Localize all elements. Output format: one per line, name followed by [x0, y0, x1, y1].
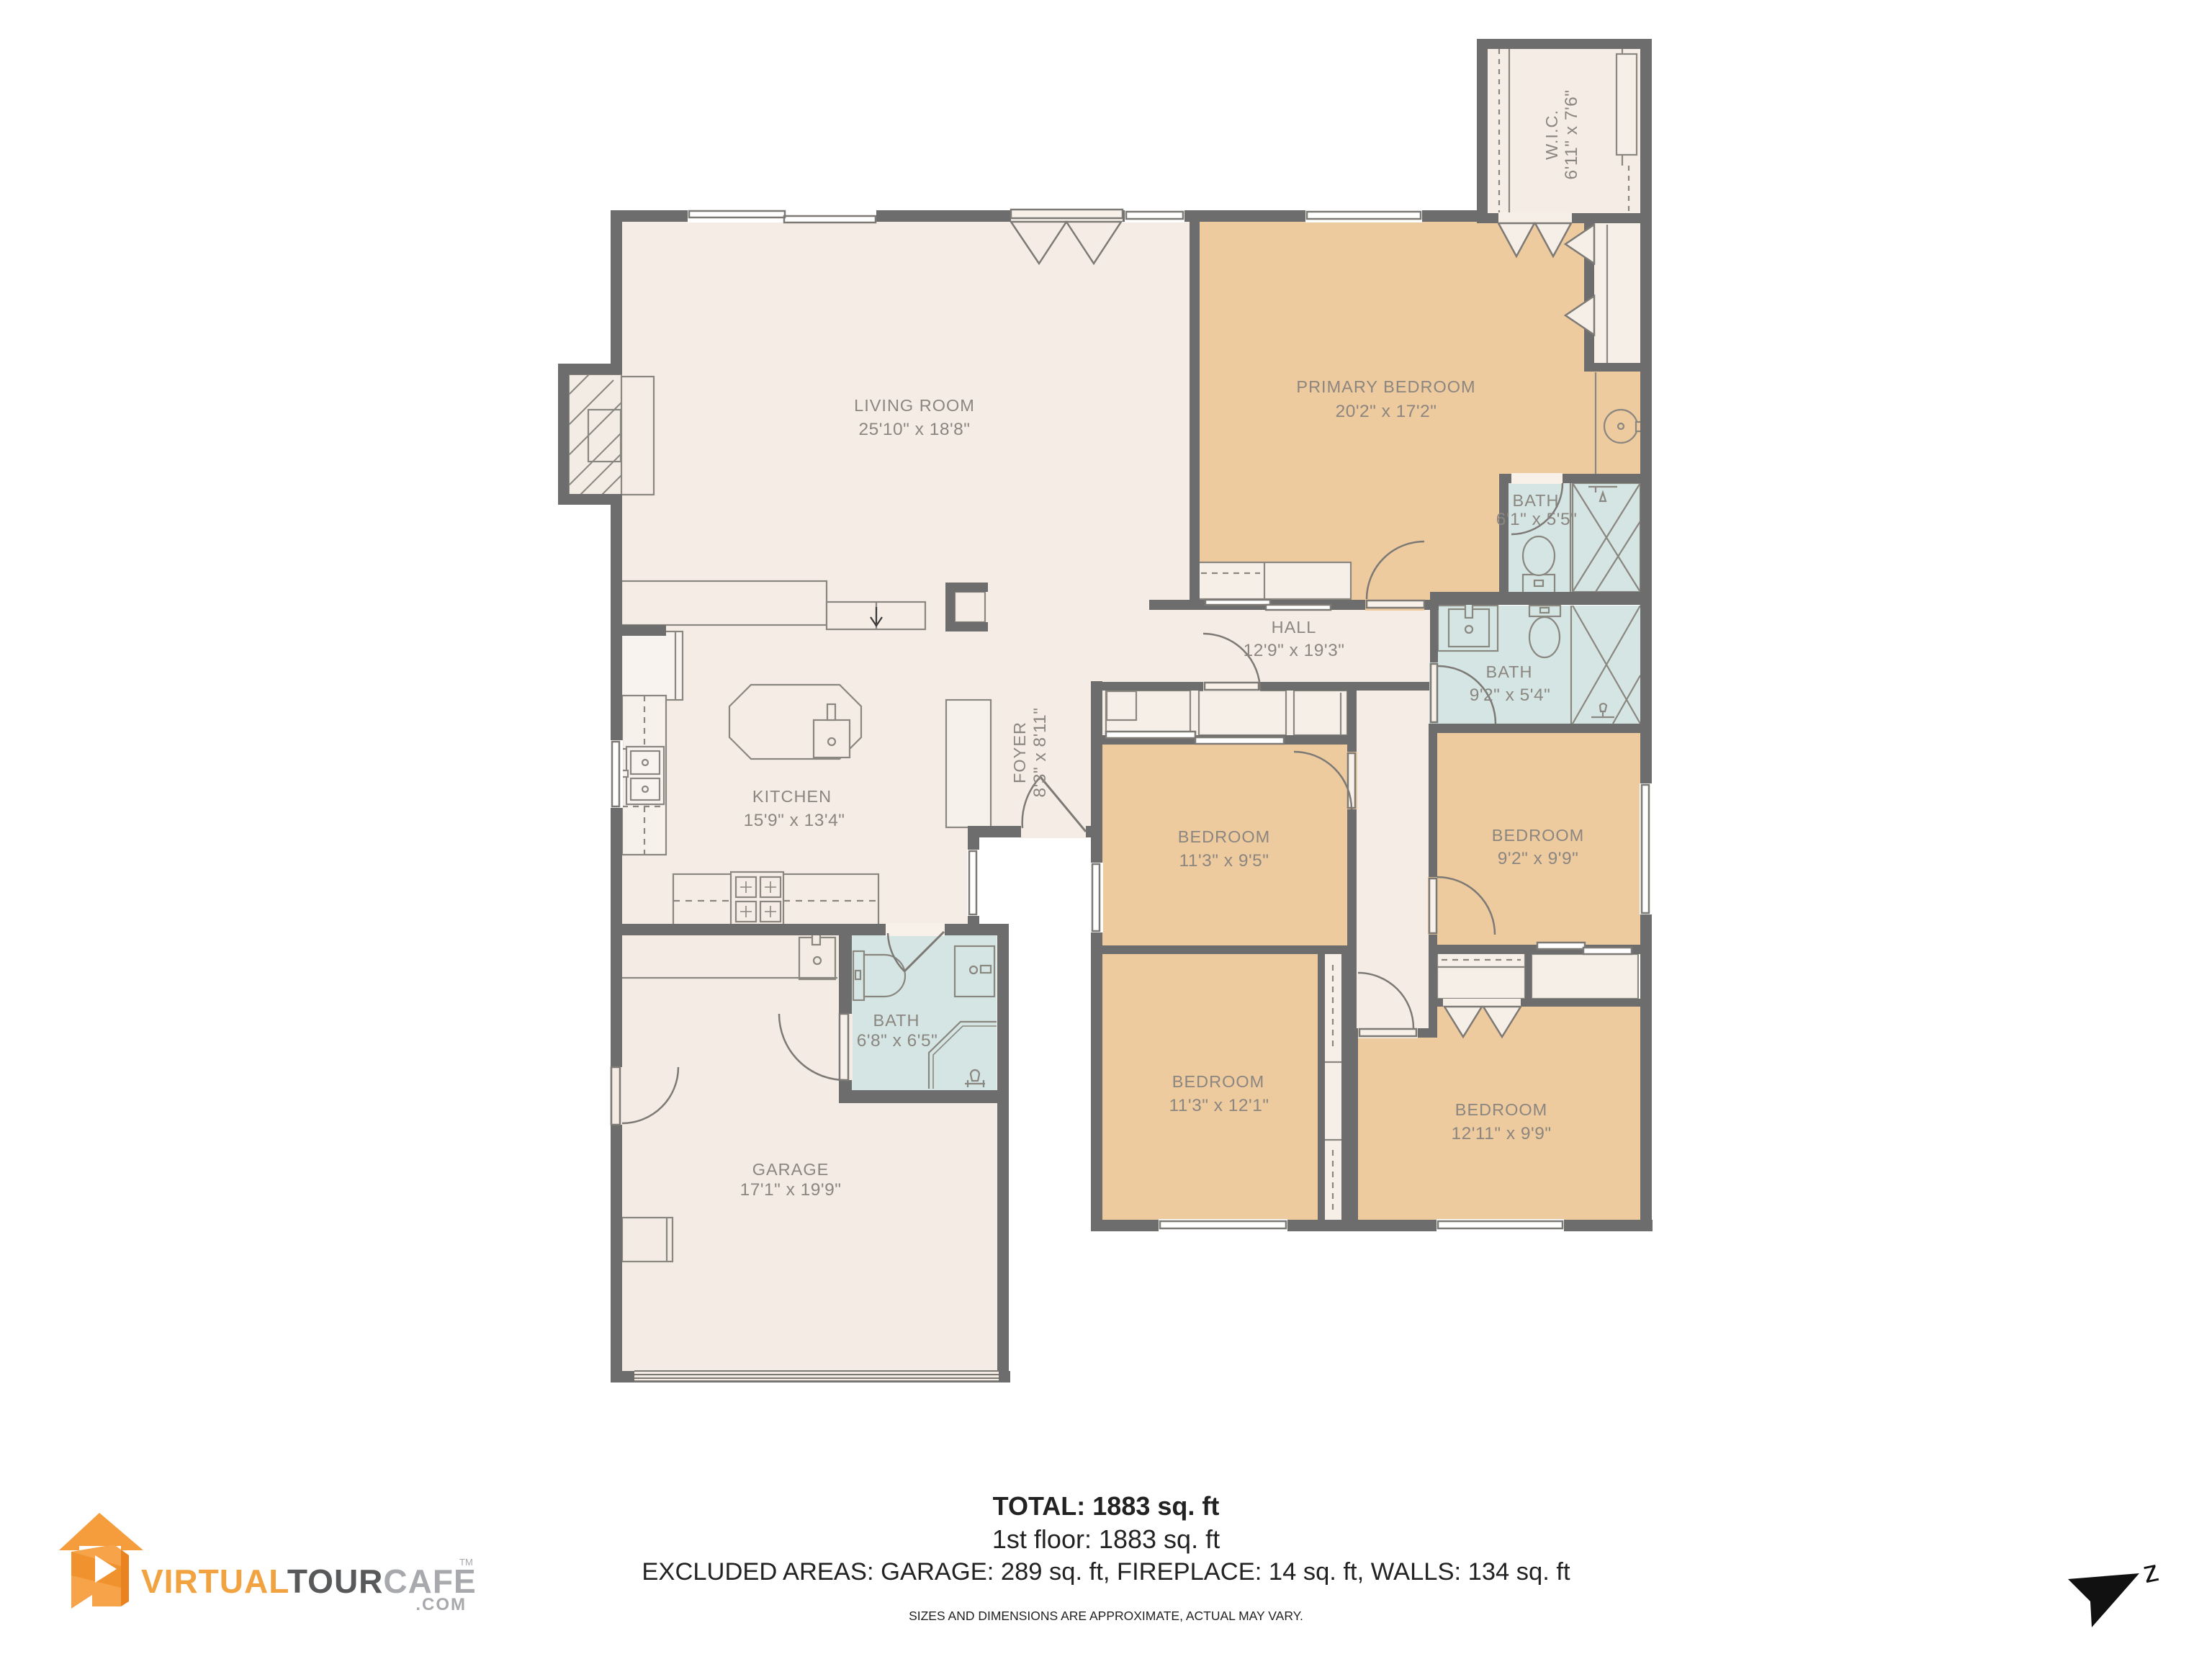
svg-text:11'3" x 12'1": 11'3" x 12'1" — [1169, 1096, 1269, 1115]
svg-text:FOYER: FOYER — [1010, 721, 1029, 783]
svg-text:BEDROOM: BEDROOM — [1492, 826, 1584, 845]
svg-text:1st floor: 1883 sq. ft: 1st floor: 1883 sq. ft — [992, 1524, 1220, 1554]
svg-text:W.I.C.: W.I.C. — [1542, 109, 1561, 160]
svg-text:HALL: HALL — [1272, 618, 1317, 637]
svg-text:BEDROOM: BEDROOM — [1172, 1072, 1264, 1091]
svg-text:11'3" x 9'5": 11'3" x 9'5" — [1179, 851, 1269, 871]
svg-text:12'11" x 9'9": 12'11" x 9'9" — [1451, 1124, 1551, 1143]
svg-text:15'9" x 13'4": 15'9" x 13'4" — [744, 811, 845, 830]
svg-text:KITCHEN: KITCHEN — [752, 787, 832, 806]
svg-text:BATH: BATH — [873, 1011, 920, 1030]
svg-text:TOTAL: 1883 sq. ft: TOTAL: 1883 sq. ft — [993, 1491, 1220, 1521]
svg-text:6'8" x 6'5": 6'8" x 6'5" — [857, 1031, 938, 1051]
svg-text:TM: TM — [459, 1557, 473, 1568]
svg-text:GARAGE: GARAGE — [752, 1160, 829, 1179]
svg-text:BATH: BATH — [1486, 662, 1533, 681]
svg-text:.COM: .COM — [415, 1595, 467, 1614]
svg-text:PRIMARY BEDROOM: PRIMARY BEDROOM — [1296, 377, 1475, 396]
svg-text:LIVING ROOM: LIVING ROOM — [854, 396, 975, 415]
svg-text:12'9" x 19'3": 12'9" x 19'3" — [1244, 641, 1345, 660]
svg-text:9'2" x 5'4": 9'2" x 5'4" — [1470, 685, 1551, 705]
svg-text:6'1" x 5'5": 6'1" x 5'5" — [1496, 510, 1578, 529]
svg-text:25'10" x 18'8": 25'10" x 18'8" — [859, 420, 971, 439]
svg-text:17'1" x 19'9": 17'1" x 19'9" — [740, 1180, 842, 1200]
svg-text:8'3" x 8'11": 8'3" x 8'11" — [1030, 708, 1050, 798]
svg-text:6'11" x 7'6": 6'11" x 7'6" — [1562, 90, 1581, 180]
svg-text:EXCLUDED AREAS: GARAGE: 289 sq: EXCLUDED AREAS: GARAGE: 289 sq. ft, FIRE… — [642, 1558, 1570, 1586]
svg-text:9'2" x 9'9": 9'2" x 9'9" — [1498, 849, 1579, 868]
svg-text:BEDROOM: BEDROOM — [1455, 1100, 1547, 1119]
svg-text:20'2" x 17'2": 20'2" x 17'2" — [1336, 402, 1437, 421]
svg-text:SIZES AND DIMENSIONS ARE APPRO: SIZES AND DIMENSIONS ARE APPROXIMATE, AC… — [909, 1609, 1303, 1623]
svg-text:BEDROOM: BEDROOM — [1178, 827, 1270, 846]
svg-text:BATH: BATH — [1513, 491, 1560, 510]
